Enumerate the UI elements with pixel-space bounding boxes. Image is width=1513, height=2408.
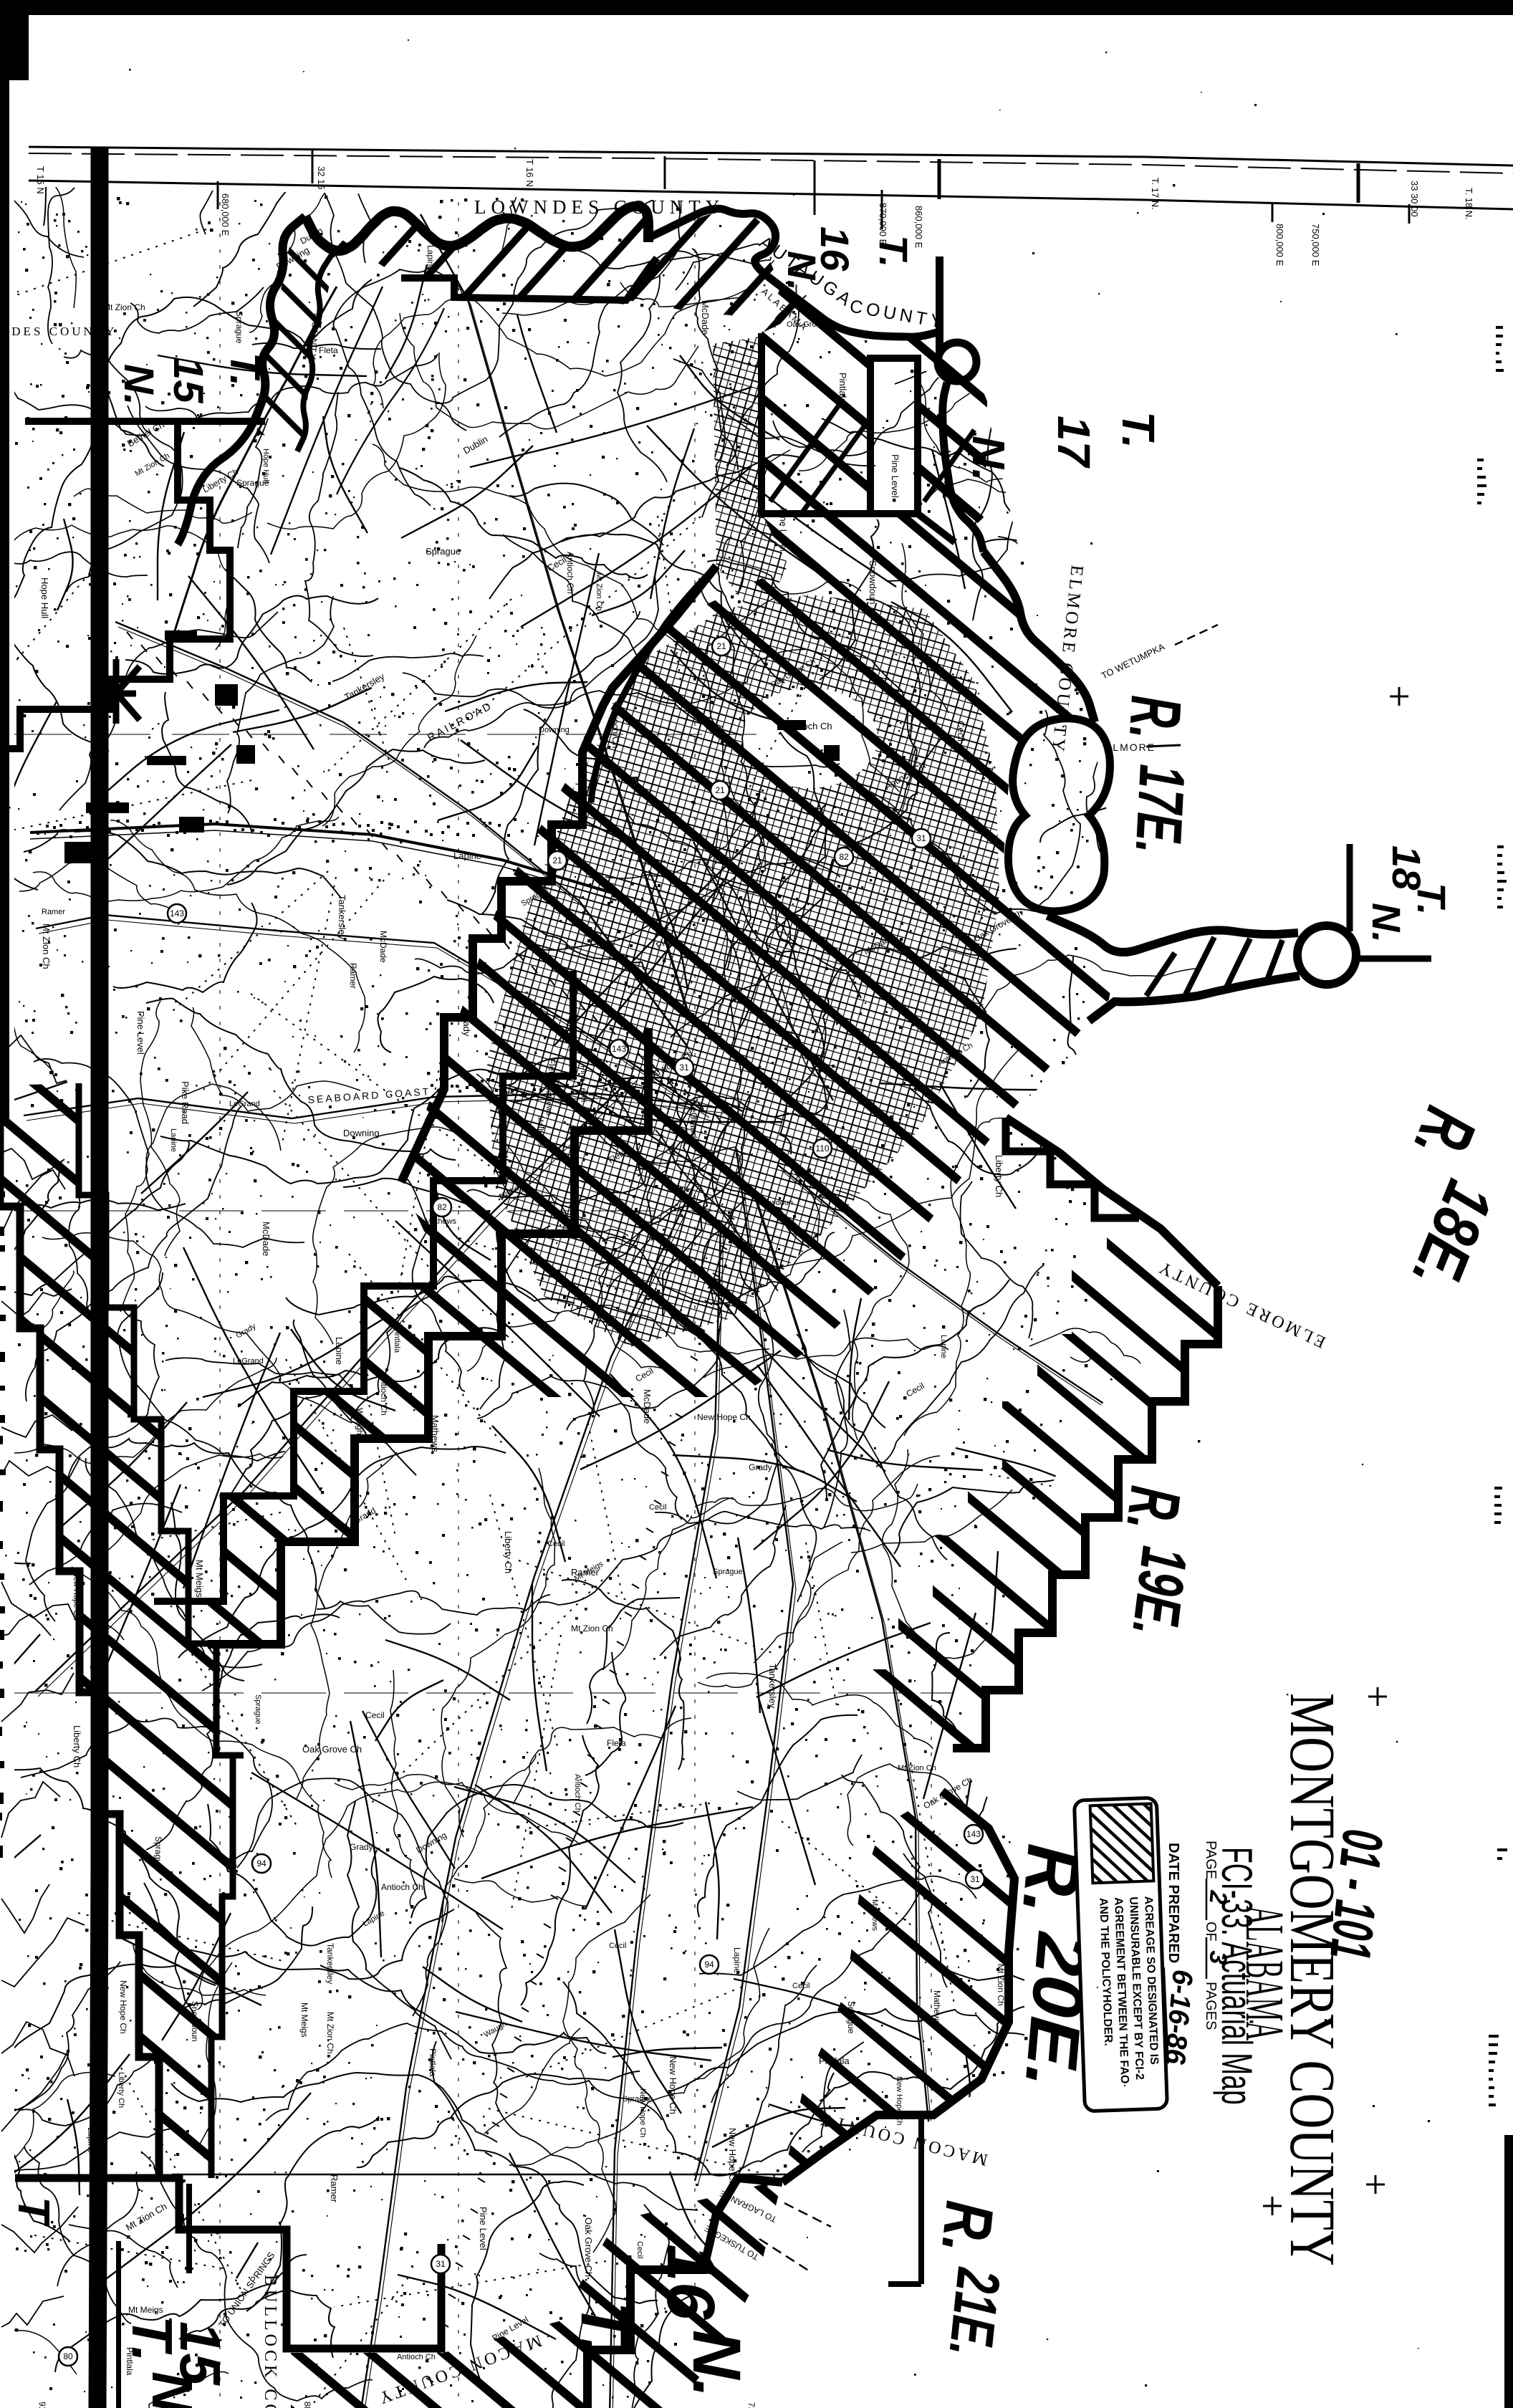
svg-text:Lapine: Lapine: [100, 1707, 108, 1730]
svg-text:Lapine: Lapine: [732, 1947, 742, 1973]
svg-text:Tankersley: Tankersley: [325, 1943, 335, 1984]
svg-text:Antioch Ch: Antioch Ch: [381, 1882, 423, 1892]
svg-text:New Hope Ch: New Hope Ch: [638, 2088, 647, 2137]
svg-text:84: 84: [646, 2402, 656, 2408]
svg-text:Snowdoun: Snowdoun: [190, 2001, 200, 2042]
svg-text:82: 82: [437, 1202, 447, 1212]
svg-text:21: 21: [552, 855, 562, 865]
svg-text:Grady: Grady: [749, 1462, 772, 1472]
svg-text:T. 17 N.: T. 17 N.: [1150, 178, 1161, 210]
svg-text:New Hope Ch: New Hope Ch: [668, 2056, 678, 2114]
svg-text:Tankersley: Tankersley: [337, 895, 347, 940]
svg-text:PAGES: PAGES: [1203, 1982, 1219, 2030]
svg-text:31: 31: [679, 1063, 689, 1073]
svg-text:LeGrand: LeGrand: [229, 1100, 260, 1108]
svg-text:T.: T.: [567, 2301, 643, 2356]
svg-text:Pine Level: Pine Level: [579, 1065, 587, 1102]
svg-text:Cecil: Cecil: [649, 1503, 666, 1512]
svg-text:McDade: McDade: [378, 931, 388, 963]
svg-text:New Hope Ch: New Hope Ch: [895, 2076, 903, 2125]
svg-text:PAGE: PAGE: [1203, 1841, 1219, 1879]
svg-text:21E.: 21E.: [936, 2264, 1013, 2359]
svg-text:Oak Grove Ch: Oak Grove Ch: [583, 2217, 594, 2277]
svg-text:Mt Zion Ch: Mt Zion Ch: [898, 1764, 936, 1773]
svg-text:Liberty Ch: Liberty Ch: [994, 1155, 1004, 1197]
svg-text:Mt Meigs: Mt Meigs: [299, 2002, 309, 2038]
svg-text:Lapine: Lapine: [426, 245, 436, 271]
svg-text:Mt Zion Ch: Mt Zion Ch: [103, 302, 145, 312]
svg-text:Hope Hull: Hope Hull: [39, 577, 50, 618]
svg-text:T 16 N: T 16 N: [524, 159, 535, 187]
svg-text:Pine Level: Pine Level: [135, 1011, 146, 1055]
svg-text:Cecil: Cecil: [365, 1710, 385, 1720]
svg-text:32 15: 32 15: [316, 166, 327, 190]
svg-text:Sellers: Sellers: [634, 1145, 644, 1171]
svg-text:Lapine: Lapine: [453, 850, 481, 861]
svg-text:Cecil: Cecil: [792, 1982, 810, 1990]
svg-text:Sprague: Sprague: [234, 311, 244, 344]
svg-text:Lapine: Lapine: [334, 1337, 345, 1365]
svg-text:R.: R.: [1114, 694, 1196, 742]
svg-text:Ramer: Ramer: [329, 2174, 340, 2203]
svg-text:Cecil: Cecil: [635, 2241, 644, 2258]
svg-text:Lapine: Lapine: [939, 1335, 948, 1358]
svg-text:McDade: McDade: [700, 300, 711, 335]
svg-text:680,000 E: 680,000 E: [220, 193, 231, 236]
svg-text:17: 17: [1048, 416, 1100, 469]
svg-text:New Hope Ch: New Hope Ch: [118, 1980, 128, 2034]
svg-text:94: 94: [704, 1960, 714, 1970]
svg-text:750,000 E: 750,000 E: [1310, 224, 1321, 267]
svg-text:31: 31: [916, 833, 926, 843]
svg-text:143: 143: [612, 1044, 626, 1054]
svg-text:Snowdoun: Snowdoun: [868, 560, 878, 604]
svg-text:New Hope Ch: New Hope Ch: [697, 1412, 751, 1422]
svg-text:143: 143: [966, 1829, 981, 1839]
svg-text:Pintlala: Pintlala: [393, 1327, 401, 1353]
svg-text:Pintlala: Pintlala: [819, 2056, 850, 2066]
svg-text:Sprague: Sprague: [846, 2001, 856, 2034]
svg-text:31: 31: [970, 1874, 980, 1884]
svg-text:21: 21: [716, 641, 726, 651]
svg-text:N.: N.: [678, 2330, 754, 2398]
svg-text:Sprague: Sprague: [254, 1694, 262, 1725]
svg-text:Liberty Ch: Liberty Ch: [117, 2072, 125, 2108]
svg-text:Ramer: Ramer: [348, 963, 358, 989]
svg-text:Grady: Grady: [461, 1011, 472, 1037]
svg-text:2: 2: [1204, 1889, 1232, 1905]
svg-text:N.: N.: [140, 2371, 204, 2408]
svg-text:McDade: McDade: [642, 1389, 653, 1424]
svg-text:Fleta: Fleta: [319, 345, 338, 355]
svg-text:OF: OF: [1203, 1922, 1219, 1942]
svg-text:72: 72: [746, 2402, 756, 2408]
svg-text:Downing: Downing: [539, 726, 570, 734]
svg-text:Antioch Ch: Antioch Ch: [610, 703, 621, 749]
svg-text:R.: R.: [927, 2198, 1008, 2257]
svg-text:Liberty Ch: Liberty Ch: [503, 1531, 514, 1573]
svg-text:BULLOCK COUNT: BULLOCK COUNT: [261, 2275, 279, 2408]
svg-text:19E.: 19E.: [1118, 1543, 1200, 1640]
svg-text:Mathews: Mathews: [932, 1990, 942, 2025]
svg-text:33 30 00: 33 30 00: [1409, 181, 1420, 217]
svg-text:Mt Meigs: Mt Meigs: [194, 1560, 205, 1598]
svg-text:LOWNDES COUNTY: LOWNDES COUNTY: [474, 196, 724, 218]
svg-text:T.: T.: [1113, 411, 1164, 448]
svg-text:910: 910: [37, 2402, 47, 2408]
svg-text:Antioch Ch: Antioch Ch: [787, 721, 832, 731]
svg-text:Pintlala: Pintlala: [428, 2048, 438, 2077]
svg-text:Lapine: Lapine: [86, 2127, 96, 2153]
svg-text:Fleta: Fleta: [607, 1738, 626, 1748]
svg-text:Sprague: Sprague: [236, 478, 269, 488]
svg-text:Grady: Grady: [350, 1842, 373, 1852]
svg-text:Fleta: Fleta: [547, 1058, 557, 1080]
svg-text:N.: N.: [115, 364, 162, 406]
svg-text:Cecil: Cecil: [609, 1942, 626, 1950]
svg-text:17E.: 17E.: [1122, 763, 1198, 855]
svg-text:Ramer: Ramer: [42, 908, 65, 916]
svg-text:80: 80: [63, 2351, 73, 2361]
svg-text:T. 18 N.: T. 18 N.: [1464, 188, 1474, 220]
svg-text:Mt Zion Ch: Mt Zion Ch: [595, 572, 603, 611]
svg-text:Pine Level: Pine Level: [478, 2207, 489, 2250]
svg-text:N.: N.: [963, 436, 1014, 481]
svg-text:Antioch Ch: Antioch Ch: [565, 552, 575, 594]
svg-text:16: 16: [653, 2244, 729, 2321]
svg-text:3: 3: [1204, 1949, 1232, 1965]
svg-text:LeGrand: LeGrand: [233, 1357, 264, 1366]
svg-text:Mt Zion Ch: Mt Zion Ch: [41, 924, 52, 969]
svg-text:Sprague: Sprague: [713, 1568, 743, 1576]
svg-text:Sprague: Sprague: [426, 546, 461, 557]
svg-text:21: 21: [715, 785, 725, 795]
svg-text:Sprague: Sprague: [623, 2095, 653, 2104]
svg-text:Waugh: Waugh: [355, 1408, 365, 1435]
svg-text:Liberty Ch: Liberty Ch: [72, 1725, 82, 1767]
svg-text:DATE PREPARED: DATE PREPARED: [1166, 1843, 1181, 1963]
svg-text:Pike Road: Pike Road: [180, 1081, 191, 1124]
svg-text:Mt Zion Ch: Mt Zion Ch: [996, 1964, 1006, 2006]
svg-text:T: T: [9, 2197, 58, 2227]
svg-text:Antioch Ch: Antioch Ch: [397, 2353, 436, 2361]
svg-text:94: 94: [256, 1858, 266, 1869]
svg-text:Pintlala: Pintlala: [837, 373, 848, 403]
svg-text:Cecil: Cecil: [956, 721, 966, 742]
svg-text:800,000 E: 800,000 E: [1274, 224, 1285, 267]
svg-text:T 15 N: T 15 N: [35, 166, 46, 194]
svg-text:FCI-33. Actuarial Map: FCI-33. Actuarial Map: [1213, 1847, 1261, 2105]
svg-text:Mathews: Mathews: [536, 1116, 544, 1148]
svg-text:18: 18: [1384, 845, 1429, 891]
svg-text:N.: N.: [779, 251, 825, 291]
svg-text:Mt Zion Ch: Mt Zion Ch: [571, 1623, 613, 1634]
svg-text:NDES COUNTY: NDES COUNTY: [0, 325, 117, 338]
svg-text:Sprague: Sprague: [153, 1836, 163, 1869]
svg-text:82: 82: [839, 852, 849, 862]
svg-text:McDade: McDade: [942, 450, 953, 484]
svg-text:88: 88: [302, 2402, 312, 2408]
svg-text:31: 31: [436, 2259, 446, 2269]
svg-text:Oak Grove Ch: Oak Grove Ch: [302, 1744, 362, 1755]
svg-text:T.: T.: [871, 235, 916, 268]
svg-text:T.: T.: [221, 352, 268, 386]
svg-text:Snowdoun: Snowdoun: [756, 1199, 793, 1207]
svg-text:Antioch Ch: Antioch Ch: [379, 1373, 389, 1416]
svg-text:LeGrand: LeGrand: [688, 1102, 699, 1138]
svg-text:Mathews: Mathews: [870, 1899, 879, 1932]
svg-text:143: 143: [170, 908, 184, 918]
svg-text:Mathews: Mathews: [430, 1415, 441, 1453]
svg-text:Cecil: Cecil: [547, 1540, 565, 1548]
svg-text:110: 110: [815, 1143, 829, 1153]
svg-text:Mt Zion Ch: Mt Zion Ch: [325, 2012, 335, 2054]
svg-text:Tankersley: Tankersley: [767, 1664, 778, 1709]
svg-text:Pine Level: Pine Level: [778, 508, 789, 552]
svg-text:McDade: McDade: [261, 1222, 272, 1256]
svg-text:Pine Level: Pine Level: [890, 454, 900, 498]
svg-text:Downing: Downing: [343, 1128, 380, 1138]
svg-text:Lapine: Lapine: [169, 1128, 178, 1152]
svg-text:N.: N.: [1364, 903, 1409, 943]
svg-text:Mt Meigs: Mt Meigs: [128, 2305, 163, 2315]
svg-text:Mathews: Mathews: [425, 1217, 457, 1226]
svg-text:New Hope Ch: New Hope Ch: [727, 2128, 738, 2186]
svg-text:15: 15: [165, 357, 211, 403]
svg-text:Mathews: Mathews: [544, 1084, 553, 1116]
